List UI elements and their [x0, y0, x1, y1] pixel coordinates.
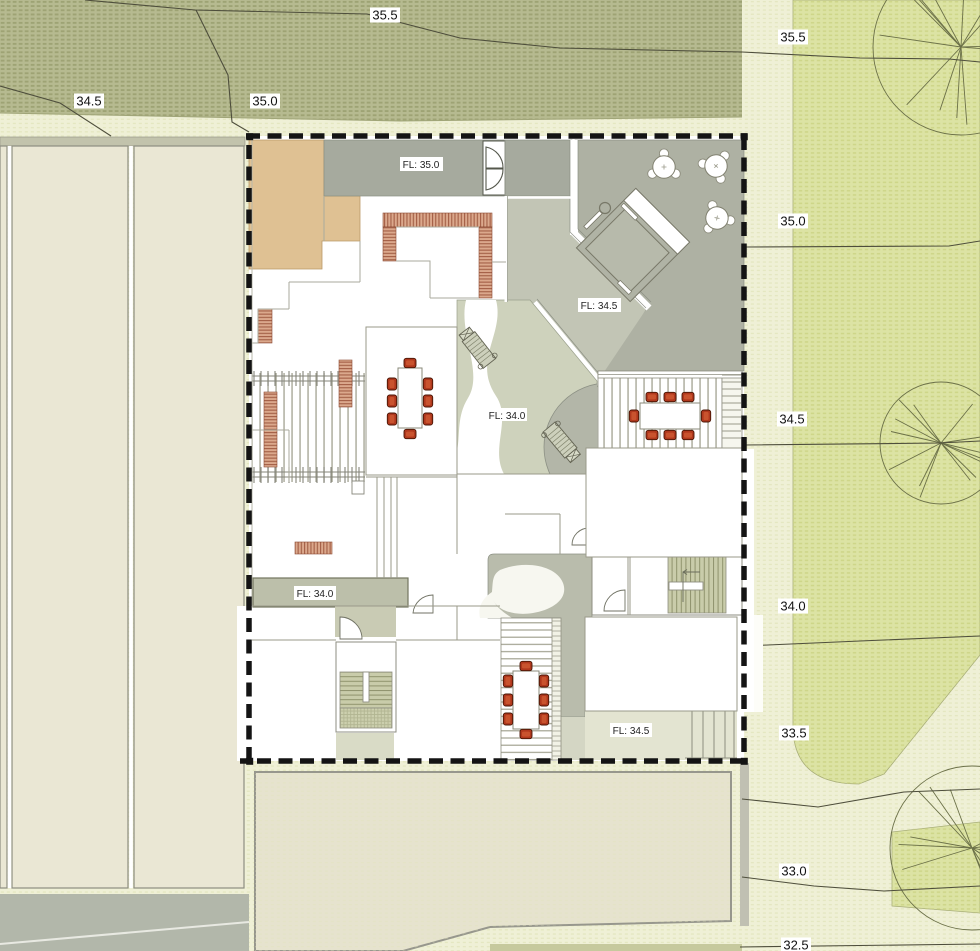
svg-text:FL: 34.5: FL: 34.5	[613, 726, 650, 737]
svg-text:34.5: 34.5	[76, 94, 101, 109]
svg-text:34.5: 34.5	[779, 412, 804, 427]
svg-text:35.5: 35.5	[372, 8, 397, 23]
svg-text:FL: 34.0: FL: 34.0	[489, 411, 526, 422]
svg-text:FL: 35.0: FL: 35.0	[403, 160, 440, 171]
svg-text:35.5: 35.5	[780, 30, 805, 45]
svg-text:FL: 34.5: FL: 34.5	[581, 301, 618, 312]
svg-text:35.0: 35.0	[780, 214, 805, 229]
svg-text:33.0: 33.0	[781, 864, 806, 879]
svg-text:34.0: 34.0	[780, 599, 805, 614]
svg-text:35.0: 35.0	[252, 94, 277, 109]
svg-text:33.5: 33.5	[781, 726, 806, 741]
svg-text:FL: 34.0: FL: 34.0	[297, 589, 334, 600]
svg-text:32.5: 32.5	[783, 938, 808, 951]
